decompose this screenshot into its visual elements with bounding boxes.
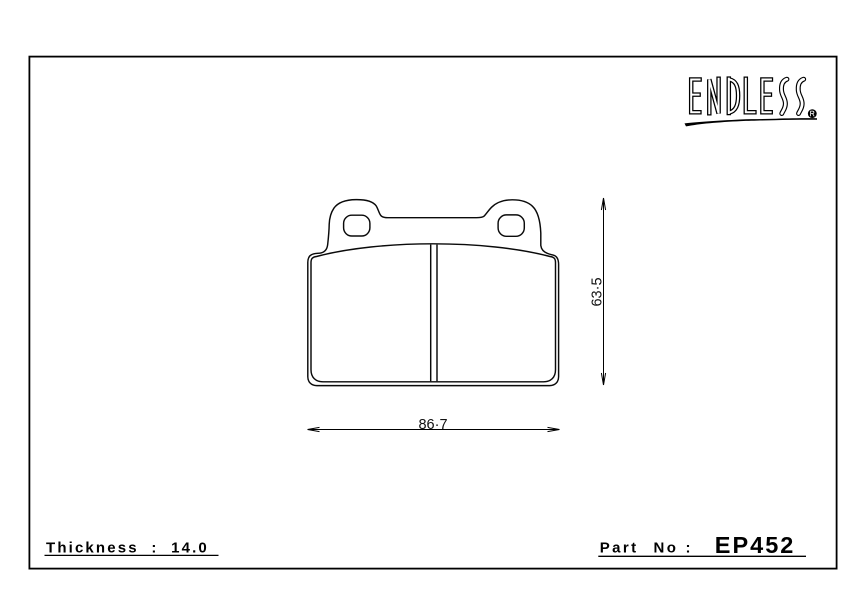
svg-text:63·5: 63·5 — [589, 277, 605, 306]
svg-text:86·7: 86·7 — [418, 417, 447, 433]
svg-text:Part: Part — [600, 540, 639, 557]
svg-text:EP452: EP452 — [715, 532, 796, 558]
svg-text:No: No — [654, 540, 679, 557]
svg-text::: : — [686, 540, 691, 557]
svg-text:Thickness : 14.0: Thickness : 14.0 — [46, 539, 209, 556]
